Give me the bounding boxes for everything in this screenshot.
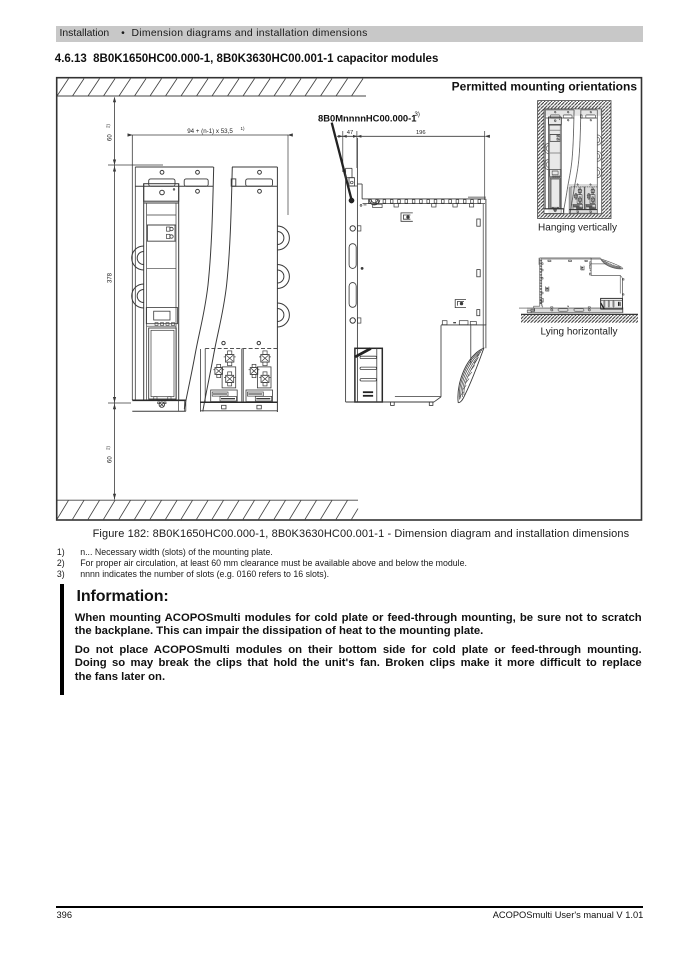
svg-text:47: 47	[347, 130, 353, 136]
svg-text:Lying horizontally: Lying horizontally	[541, 326, 618, 337]
svg-text:Hanging vertically: Hanging vertically	[538, 223, 617, 234]
svg-text:1): 1)	[241, 126, 246, 131]
svg-text:60: 60	[108, 134, 114, 141]
svg-text:Permitted mounting orientation: Permitted mounting orientations	[452, 80, 638, 94]
svg-text:3): 3)	[415, 112, 420, 118]
svg-text:8B0MnnnnHC00.000-1: 8B0MnnnnHC00.000-1	[318, 113, 416, 124]
svg-text:2): 2)	[106, 445, 111, 450]
svg-text:196: 196	[416, 130, 426, 136]
svg-text:94 + (n-1) x 53,5: 94 + (n-1) x 53,5	[187, 128, 233, 135]
svg-text:378: 378	[108, 272, 114, 283]
svg-text:2): 2)	[106, 123, 111, 128]
svg-text:60: 60	[108, 456, 114, 463]
